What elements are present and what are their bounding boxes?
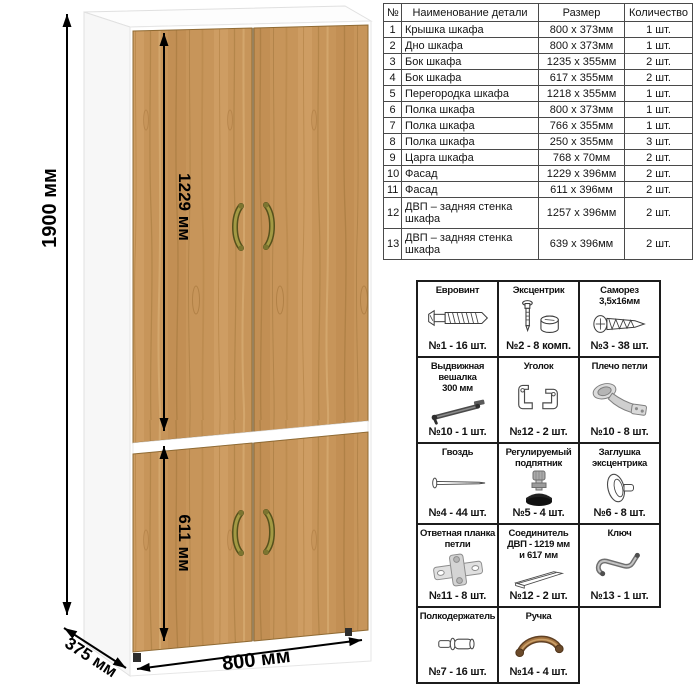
adjustable-foot-icon (517, 469, 561, 507)
hardware-cell-self-tapping-screw: Саморез 3,5х16мм №3 - 38 шт. (580, 282, 659, 356)
hardware-count: №4 - 44 шт. (429, 507, 487, 519)
hardware-cell-euro-screw: Евровинт №1 - 16 шт. (418, 282, 497, 356)
hardware-cell-nail: Гвоздь №4 - 44 шт. (418, 444, 497, 523)
hardware-count: №12 - 2 шт. (510, 426, 568, 438)
empty-grid-cell (579, 607, 660, 683)
hardware-title: Уголок (524, 361, 554, 372)
table-row: 8Полка шкафа250 х 355мм3 шт. (384, 134, 693, 150)
col-header-size: Размер (539, 4, 625, 22)
hardware-grid: Евровинт №1 - 16 шт. Эксцентрик (416, 280, 661, 684)
table-row: 10Фасад1229 х 396мм2 шт. (384, 166, 693, 182)
table-row: 7Полка шкафа766 х 355мм1 шт. (384, 118, 693, 134)
table-row: 6Полка шкафа800 х 373мм1 шт. (384, 102, 693, 118)
hardware-count: №12 - 2 шт. (510, 590, 568, 602)
table-row: 1Крышка шкафа800 х 373мм1 шт. (384, 22, 693, 38)
hardware-title: Выдвижная вешалка 300 мм (431, 361, 484, 394)
parts-table: № Наименование детали Размер Количество … (383, 3, 693, 260)
wardrobe-illustration: 1900 мм 1229 мм 611 мм 800 мм 375 мм (0, 0, 380, 700)
height-dimension-label: 1900 мм (39, 168, 61, 248)
hardware-title: Ручка (526, 611, 552, 622)
bottom-section-dimension-label: 611 мм (175, 514, 194, 571)
hardware-count: №2 - 8 комп. (506, 340, 571, 352)
table-row: 11Фасад611 х 396мм2 шт. (384, 182, 693, 198)
hardware-cell-hdf-connector: Соединитель ДВП - 1219 мм и 617 мм №12 -… (499, 525, 578, 606)
col-header-qty: Количество (625, 4, 693, 22)
wardrobe-side-panel (84, 12, 130, 676)
hardware-count: №1 - 16 шт. (429, 340, 487, 352)
hardware-title: Евровинт (436, 285, 479, 296)
hardware-cell-corner-bracket: Уголок №12 - 2 шт. (499, 358, 578, 442)
table-row: 2Дно шкафа800 х 373мм1 шт. (384, 38, 693, 54)
hardware-count: №6 - 8 шт. (594, 507, 646, 519)
cam-cover-icon (600, 471, 640, 505)
hardware-cell-hinge-arm: Плечо петли №10 - 8 шт. (580, 358, 659, 442)
table-row: 9Царга шкафа768 х 70мм2 шт. (384, 150, 693, 166)
hdf-connector-icon (509, 563, 569, 589)
hardware-cell-cam-lock: Эксцентрик №2 - 8 комп. (499, 282, 578, 356)
hardware-title: Ответная планка петли (420, 528, 495, 550)
table-header-row: № Наименование детали Размер Количество (384, 4, 693, 22)
hardware-title: Регулируемый подпятник (506, 447, 572, 469)
self-tapping-screw-icon (592, 311, 648, 337)
table-row: 4Бок шкафа617 х 355мм2 шт. (384, 70, 693, 86)
hardware-count: №10 - 1 шт. (429, 426, 487, 438)
hardware-cell-pullout-hanger: Выдвижная вешалка 300 мм №10 - 1 шт. (418, 358, 497, 442)
cam-lock-icon (512, 298, 566, 338)
front-right-foot (345, 628, 352, 636)
hardware-title: Эксцентрик (513, 285, 565, 296)
hardware-cell-shelf-pin: Полкодержатель №7 - 16 шт. (418, 608, 497, 682)
hardware-count: №11 - 8 шт. (429, 590, 486, 602)
hardware-count: №13 - 1 шт. (591, 590, 649, 602)
col-header-num: № (384, 4, 402, 22)
hinge-arm-icon (590, 379, 650, 419)
hinge-plate-icon (428, 550, 488, 590)
front-left-foot (133, 653, 141, 662)
table-row: 13ДВП – задняя стенка шкафа639 х 396мм2 … (384, 229, 693, 260)
hardware-count: №3 - 38 шт. (591, 340, 649, 352)
pullout-hanger-icon (427, 394, 489, 426)
nail-icon (429, 475, 487, 491)
hardware-title: Плечо петли (592, 361, 648, 372)
table-row: 5Перегородка шкафа1218 х 355мм1 шт. (384, 86, 693, 102)
hardware-count: №14 - 4 шт. (510, 666, 568, 678)
hardware-cell-handle: Ручка №14 - 4 шт. (499, 608, 578, 682)
hardware-title: Соединитель ДВП - 1219 мм и 617 мм (507, 528, 570, 561)
hardware-count: №10 - 8 шт. (591, 426, 649, 438)
hex-key-icon (593, 548, 647, 582)
hardware-count: №5 - 4 шт. (513, 507, 565, 519)
hardware-title: Саморез 3,5х16мм (599, 285, 640, 307)
table-row: 12ДВП – задняя стенка шкафа1257 х 396мм2… (384, 198, 693, 229)
hardware-count: №7 - 16 шт. (429, 666, 487, 678)
hardware-title: Полкодержатель (420, 611, 495, 622)
hardware-title: Ключ (608, 528, 632, 539)
hardware-cell-cam-cover: Заглушка эксцентрика №6 - 8 шт. (580, 444, 659, 523)
hardware-cell-adjustable-foot: Регулируемый подпятник №5 - 4 шт. (499, 444, 578, 523)
shelf-pin-icon (433, 633, 483, 655)
handle-icon (511, 626, 567, 662)
table-row: 3Бок шкафа1235 х 355мм2 шт. (384, 54, 693, 70)
hardware-title: Заглушка эксцентрика (592, 447, 647, 469)
euro-screw-icon (425, 307, 491, 329)
hardware-cell-hinge-plate: Ответная планка петли №11 - 8 шт. (418, 525, 497, 606)
col-header-name: Наименование детали (402, 4, 539, 22)
hardware-cell-hex-key: Ключ №13 - 1 шт. (580, 525, 659, 606)
hardware-title: Гвоздь (442, 447, 473, 458)
corner-bracket-icon (511, 382, 567, 416)
top-section-dimension-label: 1229 мм (175, 173, 194, 241)
